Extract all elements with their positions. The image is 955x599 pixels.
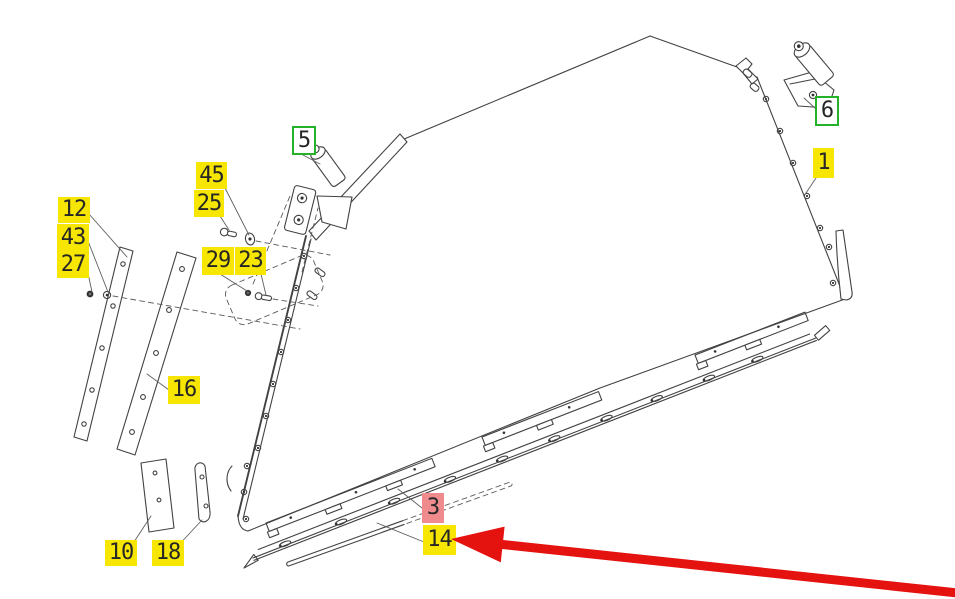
callout-12[interactable]: 12: [58, 197, 90, 223]
parts-diagram-page: 45251243272923561161018314: [0, 0, 955, 599]
callout-6[interactable]: 6: [815, 96, 839, 126]
callout-layer: 45251243272923561161018314: [0, 0, 955, 599]
callout-16[interactable]: 16: [168, 376, 200, 404]
callout-10[interactable]: 10: [105, 540, 137, 566]
callout-14[interactable]: 14: [423, 525, 456, 555]
callout-29[interactable]: 29: [202, 247, 234, 275]
callout-18[interactable]: 18: [152, 540, 184, 566]
callout-23[interactable]: 23: [235, 247, 266, 275]
callout-25[interactable]: 25: [194, 190, 224, 217]
callout-43[interactable]: 43: [57, 224, 89, 251]
callout-1[interactable]: 1: [813, 148, 834, 178]
callout-45[interactable]: 45: [196, 162, 227, 189]
callout-3[interactable]: 3: [422, 493, 444, 523]
callout-5[interactable]: 5: [292, 126, 316, 155]
callout-27[interactable]: 27: [57, 251, 89, 278]
